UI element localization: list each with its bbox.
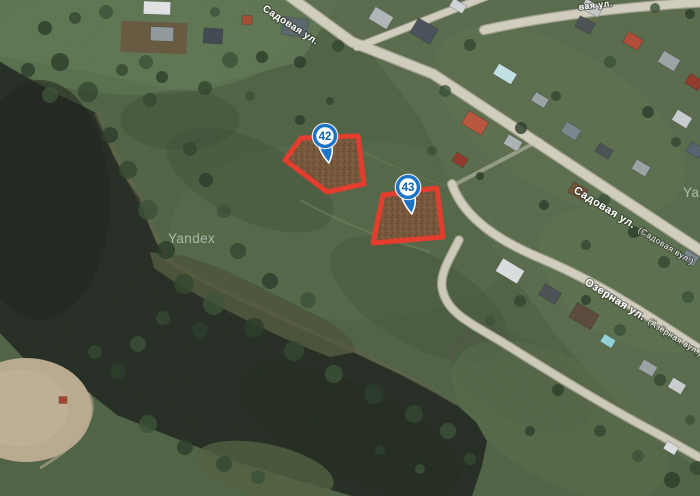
yandex-watermark-right: Yandex xyxy=(683,185,700,200)
satellite-map[interactable]: Садовая ул.(Садовая вул.)Озерная ул.(Азё… xyxy=(0,0,700,496)
map-viewport[interactable]: Садовая ул.(Садовая вул.)Озерная ул.(Азё… xyxy=(0,0,700,496)
marker-number: 43 xyxy=(402,182,415,194)
yandex-watermark: Yandex xyxy=(168,231,215,246)
photo-grain xyxy=(0,0,700,496)
marker-number: 42 xyxy=(319,131,332,143)
